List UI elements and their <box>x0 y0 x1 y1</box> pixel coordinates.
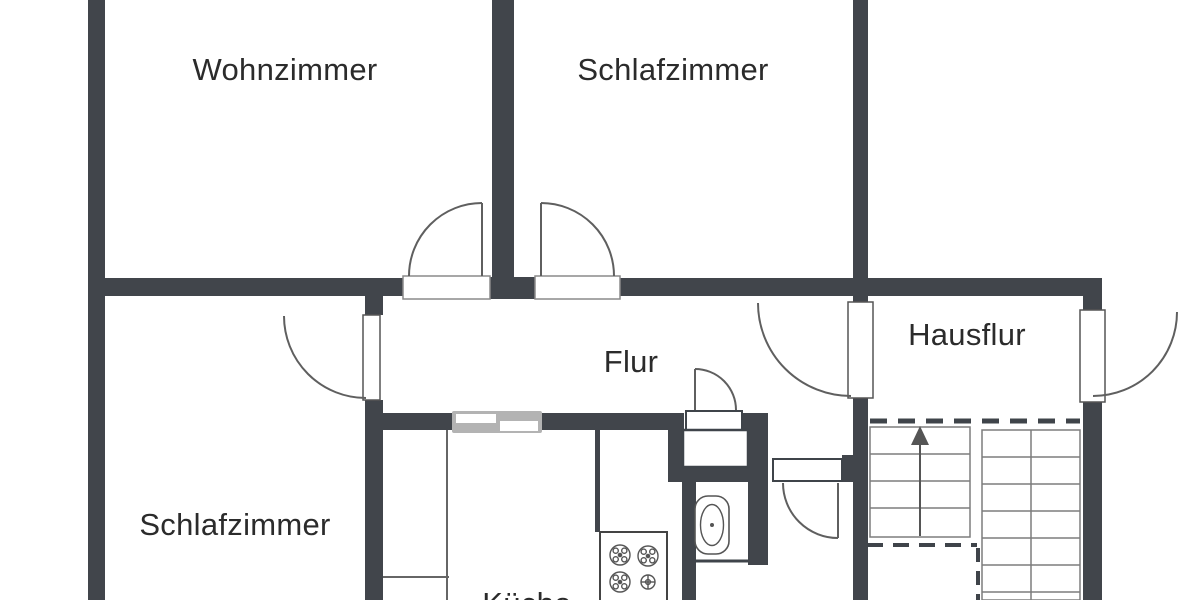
wall-hausflur-east-lower <box>1083 402 1102 600</box>
wall-hausflur-east-corner <box>1083 280 1102 310</box>
room-label-hausflur: Hausflur <box>908 317 1026 353</box>
wall-flur-hausflur-upper <box>853 0 868 302</box>
door-arc-wohnzimmer <box>409 203 482 276</box>
floorplan: Wohnzimmer Schlafzimmer Flur Hausflur Sc… <box>0 0 1200 600</box>
room-label-wohnzimmer: Wohnzimmer <box>192 52 377 88</box>
sliding-door-panel-right <box>500 421 538 431</box>
sliding-door-panel-left <box>456 414 496 423</box>
room-label-flur: Flur <box>604 344 659 380</box>
wall-band-left <box>88 278 403 296</box>
door-leaf-hausflur-exit <box>1080 310 1105 402</box>
wall-stub-room-door <box>842 455 853 482</box>
door-arc-schlafzimmer-bottom <box>284 316 366 398</box>
stove-icon <box>600 532 667 600</box>
wall-flur-south-b <box>542 413 668 430</box>
wc-vestibule <box>683 430 748 467</box>
stove-burner-small <box>641 575 655 589</box>
wall-flur-south-a <box>365 413 452 430</box>
door-arc-schlafzimmer-top <box>541 203 614 276</box>
door-threshold-schlafzimmer-top <box>535 276 620 299</box>
stair-flight-right <box>982 430 1080 600</box>
wall-pier-between-doors <box>490 277 535 299</box>
stove-burner <box>610 545 630 565</box>
door-arc-flur-hausflur <box>758 303 851 396</box>
room-label-kueche-clipped: Küche <box>482 586 571 600</box>
wall-divider-wohnzimmer-schlafzimmer <box>492 0 514 278</box>
stove-body <box>600 532 667 600</box>
wall-wc-left <box>682 482 696 600</box>
door-arc-wc <box>695 369 736 410</box>
room-label-schlafzimmer-bottom: Schlafzimmer <box>139 507 330 543</box>
door-leaf-flur-hausflur <box>848 302 873 398</box>
toilet-icon <box>695 496 748 561</box>
door-arc-room <box>783 483 838 538</box>
wall-schlafzimmer-stub <box>365 296 383 315</box>
wall-toilet-right <box>748 482 768 565</box>
door-leaf-schlafzimmer-bottom <box>363 315 380 400</box>
door-threshold-room <box>773 459 842 481</box>
toilet-drain <box>710 523 714 527</box>
staircase <box>867 421 1080 600</box>
wall-wc-band <box>668 467 768 482</box>
closet-lines <box>383 430 449 600</box>
wall-flur-hausflur-lower <box>853 398 868 600</box>
stove-burner <box>638 546 658 566</box>
stove-burner <box>610 572 630 592</box>
sliding-door-icon <box>452 411 542 433</box>
wall-stove-partition <box>595 430 600 532</box>
room-label-schlafzimmer-top: Schlafzimmer <box>577 52 768 88</box>
door-threshold-wohnzimmer <box>403 276 490 299</box>
wall-exterior-left <box>88 0 105 600</box>
